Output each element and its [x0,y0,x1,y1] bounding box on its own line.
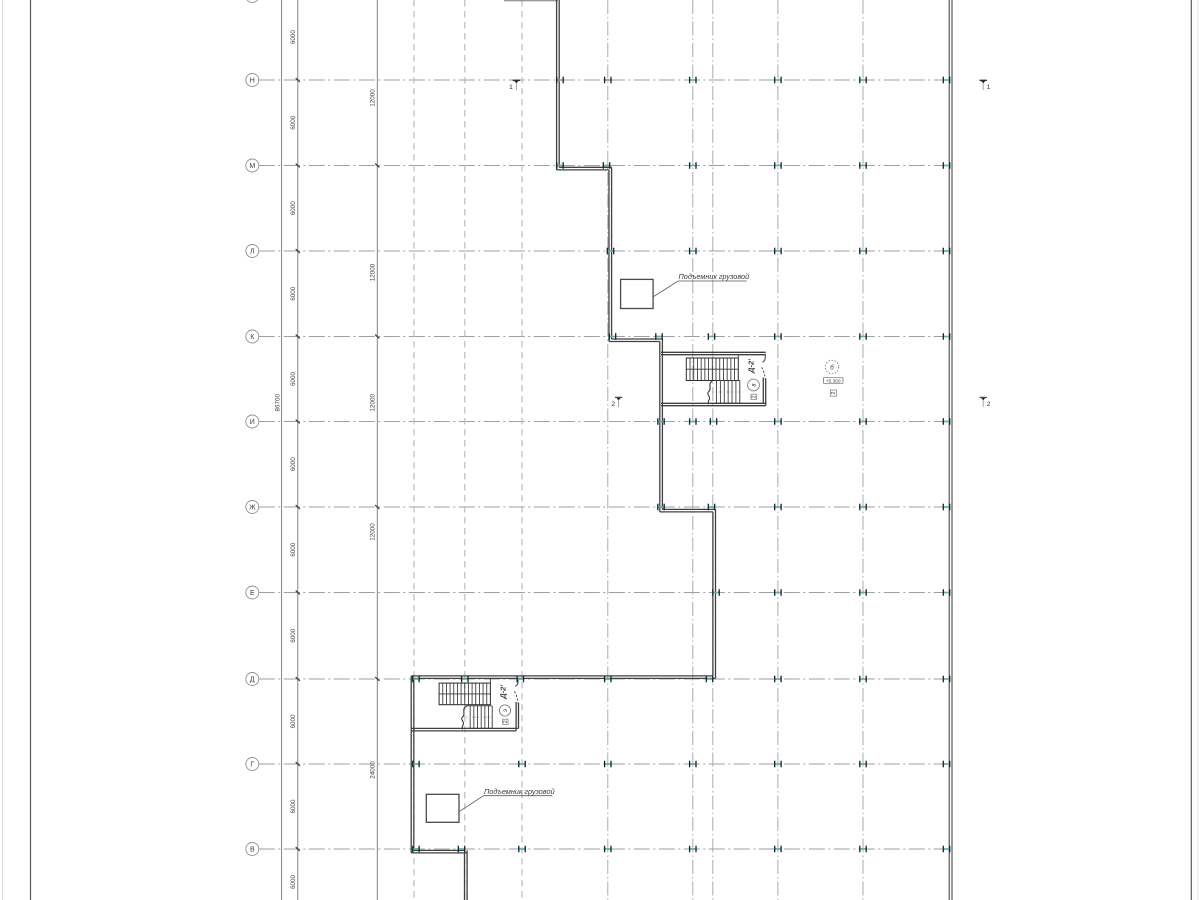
svg-text:12000: 12000 [370,263,377,281]
svg-text:1: 1 [987,84,991,91]
svg-text:6000: 6000 [290,875,297,890]
svg-text:Подъемник грузовой: Подъемник грузовой [679,272,750,281]
svg-text:1: 1 [509,84,513,91]
svg-text:Ж: Ж [249,504,256,511]
svg-text:В: В [250,846,255,853]
svg-text:2: 2 [987,401,991,408]
svg-text:86700: 86700 [274,393,281,411]
svg-text:И: И [250,419,255,426]
svg-text:6000: 6000 [290,201,297,216]
svg-text:Д-2': Д-2' [746,359,755,374]
svg-text:2: 2 [611,401,615,408]
svg-text:Д-2': Д-2' [499,685,508,700]
svg-text:6000: 6000 [290,115,297,130]
svg-text:2: 2 [751,395,757,398]
svg-text:М: М [249,163,255,170]
svg-text:Подъемник грузовой: Подъемник грузовой [484,787,555,796]
svg-text:12000: 12000 [370,523,377,541]
svg-text:24000: 24000 [370,761,377,779]
svg-text:Л: Л [250,248,255,255]
svg-text:6000: 6000 [290,542,297,557]
svg-text:б: б [830,364,834,371]
svg-text:6000: 6000 [290,714,297,729]
svg-text:6000: 6000 [290,457,297,472]
svg-text:Н: Н [250,77,255,84]
svg-text:2: 2 [831,392,837,395]
svg-text:э: э [503,709,509,712]
svg-text:Г: Г [250,761,254,768]
svg-text:6000: 6000 [290,372,297,387]
svg-text:6000: 6000 [290,286,297,301]
svg-text:12000: 12000 [370,89,377,107]
svg-text:Д: Д [250,676,255,683]
svg-text:12000: 12000 [370,393,377,411]
svg-text:в: в [752,383,758,386]
svg-text:6000: 6000 [290,30,297,45]
svg-text:6000: 6000 [290,628,297,643]
svg-text:6000: 6000 [290,799,297,814]
svg-text:2: 2 [503,720,509,723]
svg-text:+5.350: +5.350 [826,378,841,384]
svg-text:Е: Е [250,590,255,597]
